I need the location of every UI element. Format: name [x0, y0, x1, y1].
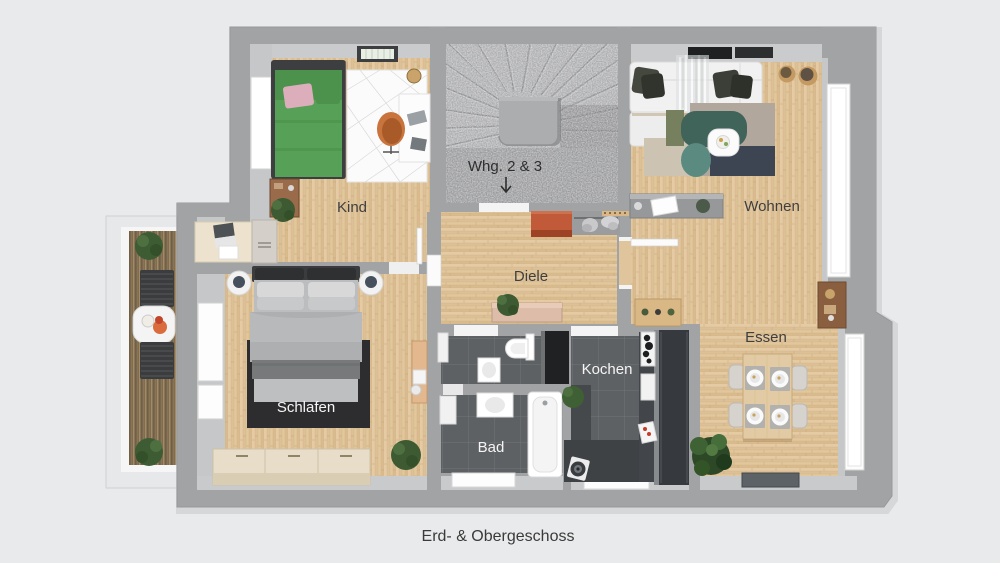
svg-text:Kochen: Kochen	[582, 361, 633, 378]
svg-text:Diele: Diele	[514, 268, 548, 285]
svg-text:Wohnen: Wohnen	[744, 198, 800, 215]
svg-text:Erd- & Obergeschoss: Erd- & Obergeschoss	[422, 528, 575, 545]
svg-text:Whg. 2 & 3: Whg. 2 & 3	[468, 158, 542, 175]
svg-text:Schlafen: Schlafen	[277, 399, 335, 416]
svg-text:Bad: Bad	[478, 439, 505, 456]
svg-text:Kind: Kind	[337, 199, 367, 216]
svg-text:Essen: Essen	[745, 329, 787, 346]
